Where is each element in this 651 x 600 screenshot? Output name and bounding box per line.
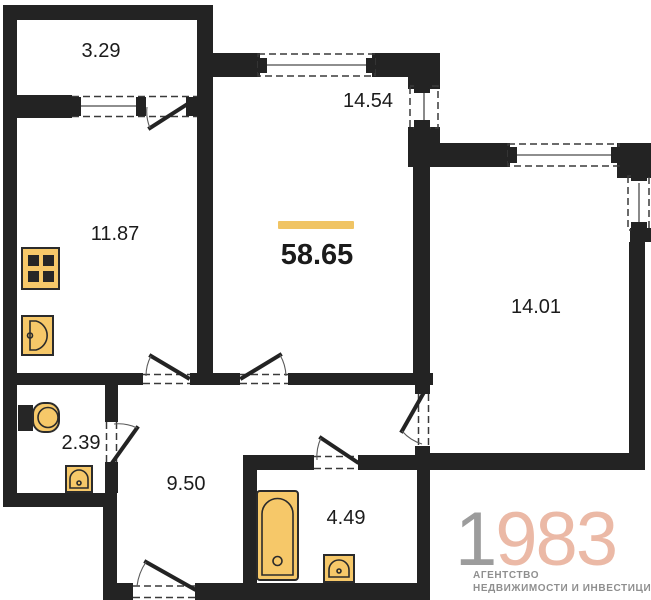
washbasin-icon [66,466,92,492]
bedroom-door [402,394,429,446]
floor-plan: 3.29 11.87 14.54 14.01 2.39 9.50 4.49 58… [0,0,651,600]
logo-tagline-line2: НЕДВИЖИМОСТИ И ИНВЕСТИЦИЙ [473,581,651,594]
entrance-door [133,562,195,598]
stove-icon [22,248,59,289]
total-area-value: 58.65 [281,239,354,271]
living-area-label: 14.54 [343,90,393,112]
wc-door [107,422,138,463]
total-area-marker [278,221,354,229]
agency-logo: 1983 АГЕНТСТВО НЕДВИЖИМОСТИ И ИНВЕСТИЦИЙ [455,497,651,594]
bedroom-top-window [508,144,620,166]
balcony-window [71,97,197,117]
kitchen-sink-icon [22,316,53,355]
bedroom-area-label: 14.01 [511,296,561,318]
bathroom-sink-icon [324,555,354,582]
living-room-door [240,355,288,384]
bathtub-icon [257,491,298,580]
bathroom-door [314,438,358,469]
toilet-icon [18,403,59,432]
corner-window [410,84,438,129]
bathroom-area-label: 4.49 [327,507,366,529]
kitchen-door [143,356,190,384]
balcony-area-label: 3.29 [82,40,121,62]
living-room-window [258,54,375,76]
total-area: 58.65 [278,221,354,271]
hallway-area-label: 9.50 [167,473,206,495]
floor-plan-page: 3.29 11.87 14.54 14.01 2.39 9.50 4.49 58… [0,0,651,600]
bedroom-side-window [628,172,649,231]
kitchen-area-label: 11.87 [91,223,140,245]
wc-area-label: 2.39 [62,432,101,454]
logo-tagline-line1: АГЕНТСТВО [473,570,539,581]
